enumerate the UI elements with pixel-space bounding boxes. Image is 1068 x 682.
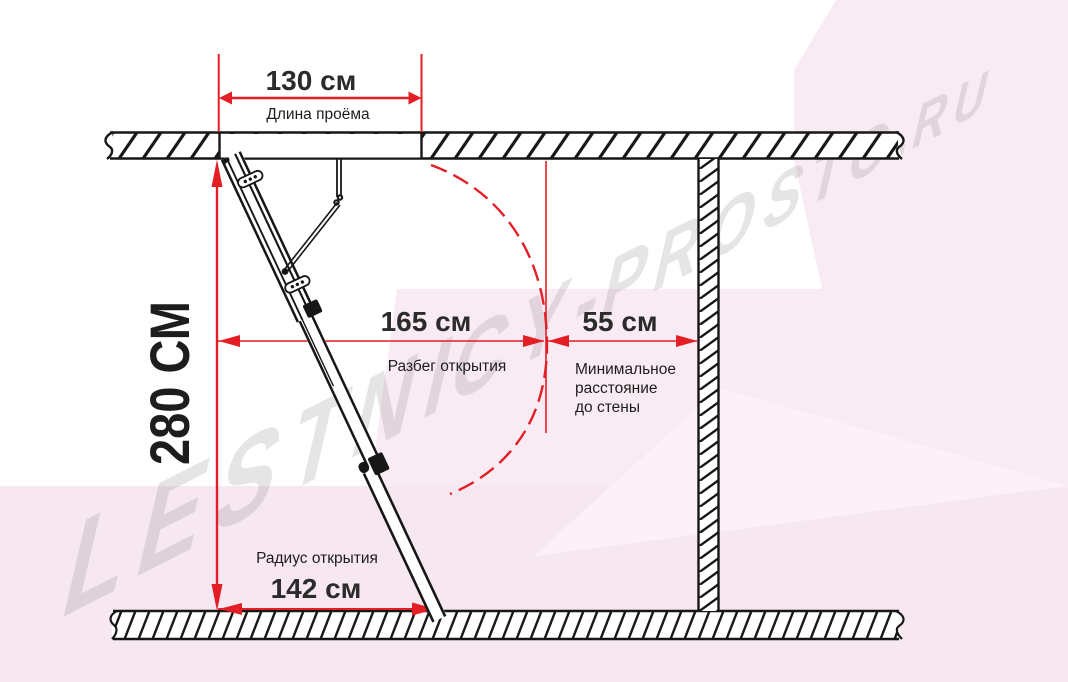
svg-text:55 см: 55 см	[582, 306, 657, 337]
svg-text:расстояние: расстояние	[575, 380, 658, 397]
svg-text:130 см: 130 см	[266, 65, 357, 96]
svg-text:142 см: 142 см	[271, 573, 362, 604]
svg-text:280 СМ: 280 СМ	[138, 301, 201, 465]
svg-text:165 см: 165 см	[381, 306, 472, 337]
svg-text:Минимальное: Минимальное	[575, 361, 676, 378]
svg-text:Радиус открытия: Радиус открытия	[256, 550, 378, 567]
svg-text:до стены: до стены	[575, 399, 640, 416]
svg-text:Разбег открытия: Разбег открытия	[388, 358, 507, 375]
svg-text:Длина проёма: Длина проёма	[266, 106, 370, 123]
